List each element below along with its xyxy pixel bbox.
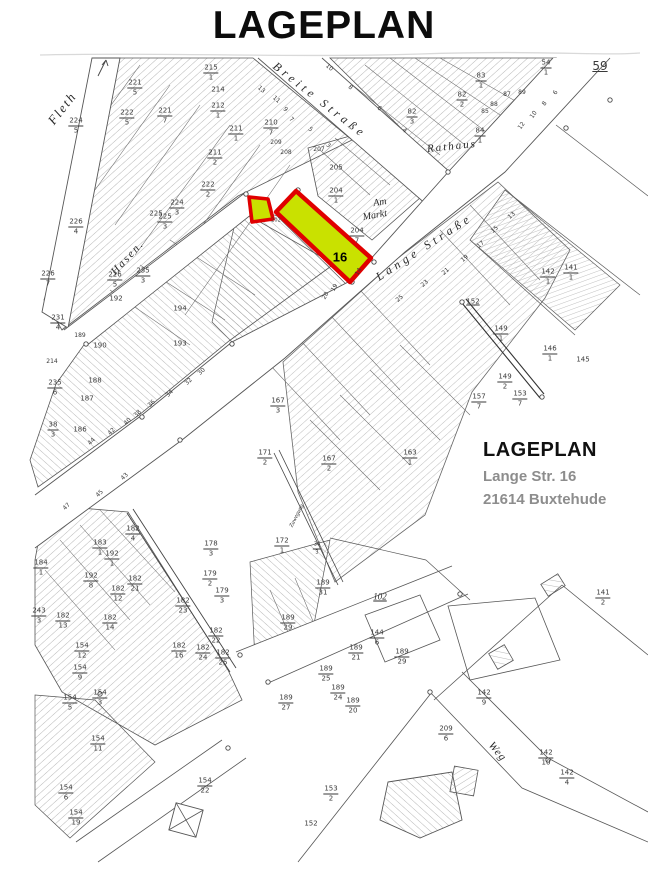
info-heading: LAGEPLAN bbox=[483, 436, 606, 464]
highlighted-parcel-annex bbox=[249, 197, 273, 222]
info-city: 21614 Buxtehude bbox=[483, 489, 606, 510]
lageplan-page: LAGEPLAN bbox=[0, 0, 648, 890]
highlighted-parcel-number: 16 bbox=[333, 250, 347, 265]
address-info-block: LAGEPLAN Lange Str. 16 21614 Buxtehude bbox=[483, 436, 606, 510]
info-street: Lange Str. 16 bbox=[483, 466, 606, 487]
